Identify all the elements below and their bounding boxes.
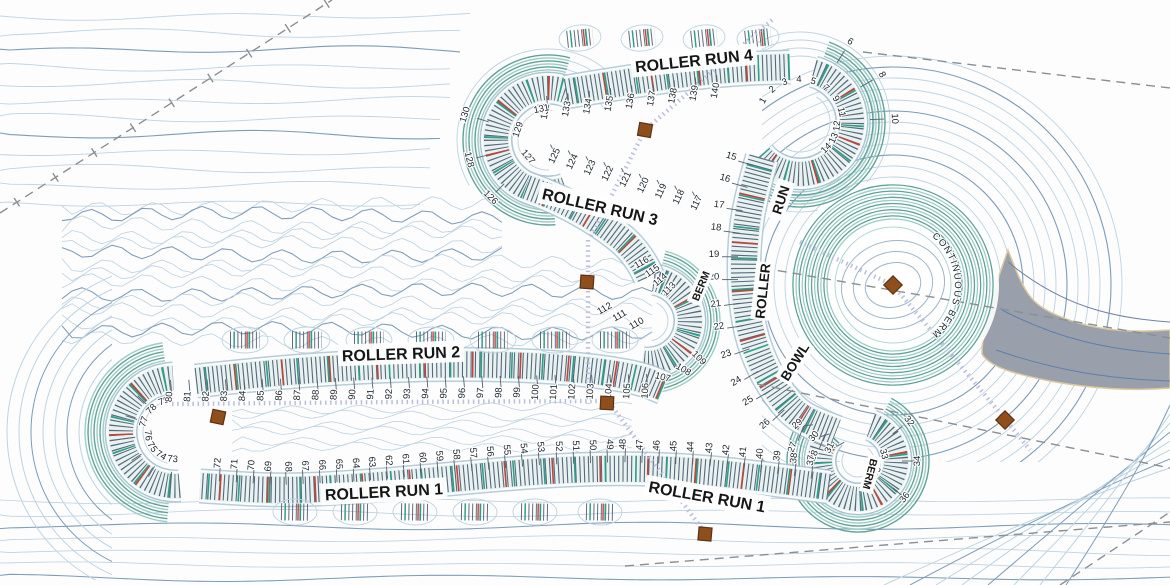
station-number: 62 [382, 455, 394, 467]
station-number: 60 [416, 452, 428, 464]
station-number: 96 [457, 387, 469, 398]
station-number: 12 [831, 120, 843, 132]
station-number: 44 [685, 441, 696, 452]
station-number: 98 [493, 387, 505, 398]
station-number: 123 [582, 158, 599, 177]
station-number: 18 [710, 221, 722, 233]
plan-canvas: 1321331341351361371381391401234579111213… [0, 0, 1170, 585]
station-number: 95 [438, 388, 450, 399]
station-number: 1 [757, 96, 769, 106]
roller-mound [284, 327, 330, 353]
roller-mound [558, 23, 602, 53]
station-number: 92 [383, 388, 395, 399]
station-number: 118 [671, 188, 687, 206]
station-number: 48 [617, 439, 628, 450]
station-number: 138 [666, 87, 680, 105]
station-number: 56 [484, 446, 496, 458]
station-number: 4 [796, 74, 802, 85]
survey-marker [210, 409, 225, 424]
station-number: 137 [645, 90, 659, 108]
station-number: 57 [467, 447, 479, 459]
station-number: 97 [475, 387, 487, 398]
station-number: 80 [164, 391, 176, 402]
station-number: 59 [433, 450, 445, 462]
station-number: 34 [912, 456, 923, 467]
station-number: 71 [229, 459, 241, 470]
station-number: 102 [566, 383, 578, 400]
station-number: 52 [553, 441, 564, 452]
station-number: 66 [316, 459, 328, 470]
station-number: 83 [219, 390, 231, 401]
station-number: 41 [737, 446, 749, 458]
station-number: 140 [709, 82, 723, 100]
station-number: 10 [889, 113, 900, 124]
station-number: 135 [602, 95, 616, 113]
station-number: 50 [587, 440, 598, 451]
station-number: 61 [399, 453, 411, 465]
station-number: 134 [581, 98, 595, 116]
station-number: 67 [299, 460, 311, 471]
survey-marker [637, 122, 652, 137]
station-number: 22 [713, 321, 725, 333]
station-number: 77 [137, 415, 151, 429]
station-number: 81 [182, 391, 194, 402]
station-number: 128 [462, 151, 477, 169]
station-number: 24 [729, 374, 744, 389]
station-number: 45 [668, 441, 679, 452]
station-number: 46 [651, 440, 662, 451]
station-number: 19 [709, 249, 720, 260]
station-number: 136 [624, 92, 638, 110]
station-number: 42 [720, 444, 732, 456]
station-number: 101 [548, 384, 560, 401]
station-number: 39 [771, 450, 783, 462]
funnel-shape [982, 250, 1170, 389]
station-number: 43 [703, 442, 715, 454]
station-number: 21 [710, 298, 722, 310]
station-number: 40 [754, 448, 766, 460]
station-number: 94 [420, 388, 432, 399]
station-number: 65 [333, 458, 345, 469]
station-number: 119 [653, 182, 669, 200]
contour-arcs-left [7, 264, 343, 585]
survey-marker [698, 527, 712, 541]
survey-marker [600, 396, 614, 410]
station-number: 6 [845, 36, 855, 48]
station-number: 89 [328, 389, 340, 400]
roller-mound [620, 23, 664, 53]
station-number: 91 [365, 389, 377, 400]
roller-mound [513, 499, 557, 526]
station-number: 105 [621, 383, 633, 400]
station-number: 38 [788, 452, 800, 464]
station-number: 85 [255, 390, 267, 401]
station-number: 2 [767, 84, 778, 96]
station-number: 51 [570, 440, 581, 451]
station-number: 125 [546, 146, 563, 165]
station-number: 99 [511, 387, 523, 398]
station-number: 47 [634, 439, 645, 450]
label-bowl-run-word-bowl: BOWL [775, 337, 815, 386]
station-number: 64 [350, 458, 362, 469]
station-number: 87 [292, 390, 304, 401]
station-number: 16 [718, 172, 731, 185]
station-number: 90 [347, 389, 359, 400]
station-number: 15 [725, 150, 738, 163]
roller-mound [393, 499, 437, 526]
station-number: 55 [501, 444, 513, 456]
station-number: 106 [639, 383, 651, 400]
station-number: 120 [635, 176, 652, 195]
label-roller-run-2: ROLLER RUN 2 [338, 340, 465, 366]
station-number: 84 [237, 390, 249, 401]
station-number: 70 [246, 460, 258, 471]
station-number: 117 [689, 194, 705, 212]
station-number: 93 [402, 388, 414, 399]
station-number: 68 [282, 461, 294, 472]
roller-mound [532, 327, 578, 353]
station-number: 124 [564, 152, 581, 171]
roller-mound [222, 327, 268, 353]
station-number: 72 [212, 457, 224, 468]
survey-marker [580, 275, 594, 289]
station-number: 103 [585, 383, 597, 400]
station-number: 37 [805, 454, 817, 466]
roller-mound [453, 499, 497, 526]
station-number: 63 [366, 456, 378, 468]
station-number: 17 [713, 199, 725, 211]
station-number: 82 [200, 391, 212, 402]
station-number: 25 [741, 394, 756, 409]
station-number: 69 [263, 461, 275, 472]
station-number: 54 [518, 443, 530, 455]
station-number: 100 [530, 384, 542, 401]
station-number: 73 [167, 453, 178, 465]
station-number: 23 [719, 347, 733, 361]
roller-mound [578, 499, 622, 526]
station-number: 53 [534, 441, 546, 453]
station-number: 58 [450, 449, 462, 461]
station-number: 86 [273, 390, 285, 401]
station-number: 76 [142, 430, 154, 442]
station-number: 26 [757, 416, 772, 431]
station-number: 49 [604, 439, 615, 450]
station-number: 122 [600, 164, 617, 183]
station-number: 121 [617, 170, 634, 189]
station-number: 139 [687, 84, 701, 102]
station-number: 133 [560, 100, 574, 118]
track-band [200, 469, 829, 490]
station-number: 88 [310, 389, 322, 400]
site-plan-svg: 1321331341351361371381391401234579111213… [0, 0, 1170, 585]
